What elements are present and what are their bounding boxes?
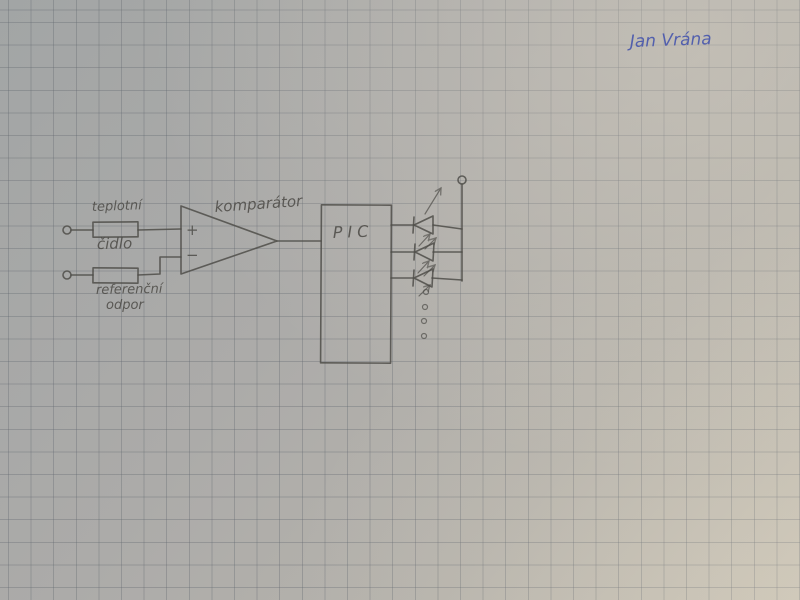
reference-resistor bbox=[93, 268, 138, 283]
wire bbox=[138, 257, 181, 275]
wire bbox=[138, 229, 181, 230]
temperature-sensor-label-line1: teplotní bbox=[92, 198, 145, 215]
reference-resistor-branch: referenční odpor bbox=[63, 257, 181, 313]
input-terminal-top bbox=[63, 226, 71, 234]
dot bbox=[424, 290, 429, 295]
led-triangle bbox=[415, 243, 434, 261]
temperature-sensor-label-line2: čidlo bbox=[97, 234, 133, 253]
reference-resistor-label-line2: odpor bbox=[106, 298, 145, 313]
reference-resistor-label-line1: referenční bbox=[96, 282, 165, 298]
continuation-dots bbox=[422, 290, 429, 339]
pic-label: PIC bbox=[332, 222, 373, 242]
dot bbox=[423, 305, 428, 310]
hand-drawn-schematic: Jan Vrána teplotní čidlo referenční odpo… bbox=[0, 0, 800, 600]
led-triangle bbox=[414, 269, 433, 287]
temperature-sensor-branch: teplotní čidlo bbox=[63, 198, 181, 253]
wire bbox=[432, 278, 462, 280]
comparator-label: komparátor bbox=[214, 192, 304, 216]
led-symbol bbox=[391, 188, 462, 249]
input-terminal-bottom bbox=[63, 271, 71, 279]
wire bbox=[433, 225, 462, 229]
comparator-minus-input: − bbox=[186, 246, 199, 264]
pic-microcontroller: PIC bbox=[321, 205, 392, 363]
led-triangle bbox=[414, 216, 433, 234]
signature: Jan Vrána bbox=[626, 29, 711, 52]
supply-terminal bbox=[458, 176, 466, 184]
comparator: + − komparátor bbox=[181, 192, 321, 274]
dot bbox=[422, 334, 427, 339]
comparator-plus-input: + bbox=[186, 221, 199, 239]
led-emission-arrow bbox=[425, 188, 441, 214]
dot bbox=[422, 319, 427, 324]
led-emission-arrow bbox=[419, 234, 430, 246]
